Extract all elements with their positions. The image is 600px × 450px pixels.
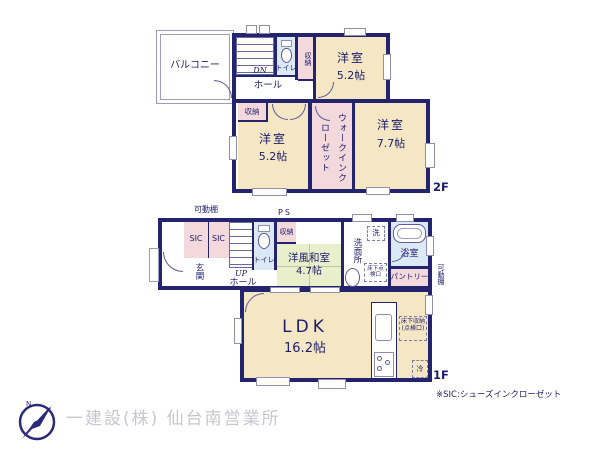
toilet-bowl-icon <box>258 233 270 249</box>
window <box>425 143 435 168</box>
balcony-label: バルコニー <box>160 60 230 72</box>
f1-floor-label: 1F <box>433 368 449 382</box>
f1-underfloor-hatch-label: 床下点検口 <box>365 266 386 279</box>
company-name: 一建設(株) 仙台南営業所 <box>66 404 281 429</box>
f2-room3-size: 7.7帖 <box>360 138 422 151</box>
window <box>234 318 242 344</box>
f1-washitsu <box>277 244 341 286</box>
toilet-tank-icon <box>258 225 270 232</box>
window <box>426 236 434 256</box>
underfloor-storage-label: 床下収納(点検口) <box>398 319 428 333</box>
compass-n-label: N <box>26 400 31 408</box>
f2-room2-name: 洋室 <box>240 133 306 147</box>
sink-icon <box>345 268 360 287</box>
f2-room3-name: 洋室 <box>360 119 422 133</box>
wall-segment <box>295 37 298 80</box>
ldk-size: 16.2帖 <box>262 342 348 357</box>
window <box>352 214 372 222</box>
window <box>425 295 433 315</box>
f1-hall-label: ホール <box>224 278 262 288</box>
window <box>259 25 270 34</box>
kitchen-sink-icon <box>375 314 392 341</box>
f2-room1-name: 洋室 <box>321 52 381 66</box>
stove-burner-icon <box>385 360 390 365</box>
sic-note: ※SIC:シューズインクローゼット <box>436 388 561 400</box>
stairs-dn-label: DN <box>248 66 272 75</box>
stairs-1f <box>229 222 253 268</box>
wall-segment <box>298 79 313 81</box>
f2-floor-label: 2F <box>433 180 449 194</box>
toilet-tank-icon <box>281 40 292 47</box>
toilet-bowl-icon <box>281 48 292 63</box>
f2-toilet-label: トイレ <box>272 64 300 72</box>
stairs-up-label: UP <box>230 269 252 278</box>
window <box>318 379 346 389</box>
window <box>229 136 237 160</box>
wall-segment <box>236 75 296 77</box>
f1-washitsu-size: 4.7帖 <box>277 266 341 278</box>
f2-closet-b-label: 収納 <box>238 108 266 117</box>
window <box>366 187 390 195</box>
window <box>396 214 414 222</box>
window <box>246 25 257 34</box>
f1-pantry-label: パントリー <box>389 273 430 282</box>
wall-segment <box>341 222 344 286</box>
f1-senmenjo-label: 洗面所 <box>348 231 361 271</box>
f1-shelf-top-label: 可動棚 <box>186 205 226 214</box>
stove-burner-icon <box>377 356 382 361</box>
window <box>383 54 391 80</box>
f1-washitsu-name: 洋風和室 <box>277 252 341 264</box>
window <box>256 377 290 386</box>
f1-genkan-label: 玄関 <box>190 256 203 286</box>
f2-closet-a-label: 収納 <box>299 46 312 72</box>
ldk-name: LDK <box>268 318 342 338</box>
f2-room2-size: 5.2帖 <box>240 151 306 164</box>
floorplan-canvas: バルコニー DN ホール トイレ 収納 洋室 5.2帖 収納 洋室 5.2帖 ウ… <box>0 0 600 450</box>
f2-room1-size: 5.2帖 <box>321 70 381 83</box>
wall-segment <box>313 37 316 99</box>
company-logo: N <box>12 396 60 444</box>
window <box>344 28 366 36</box>
window <box>252 188 287 196</box>
f1-washer-label: 洗 <box>367 229 385 238</box>
f1-ps-label: PS <box>275 208 295 217</box>
bathtub-icon <box>393 224 426 243</box>
f1-sic-left-label: SIC <box>184 234 208 243</box>
fridge-label: 冷 <box>412 365 428 373</box>
sliding-door <box>270 287 300 293</box>
f1-shelf-right-label: 可動棚 <box>434 258 445 290</box>
f1-sic-right-label: SIC <box>208 234 229 243</box>
porch <box>149 248 159 282</box>
f2-hall-label: ホール <box>240 81 296 92</box>
stove-burner-icon <box>377 366 382 371</box>
wall-segment <box>352 103 355 189</box>
sliding-door <box>310 287 340 293</box>
f1-closet-label: 収納 <box>276 228 297 236</box>
wall-segment <box>308 103 312 189</box>
f2-wic-label: ウォークインクローゼット <box>315 110 349 186</box>
